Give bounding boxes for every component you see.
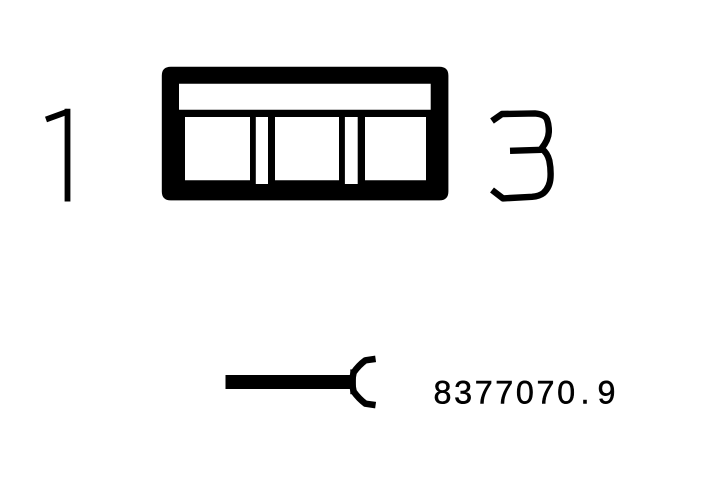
- svg-text:8377070.9: 8377070.9: [434, 375, 616, 411]
